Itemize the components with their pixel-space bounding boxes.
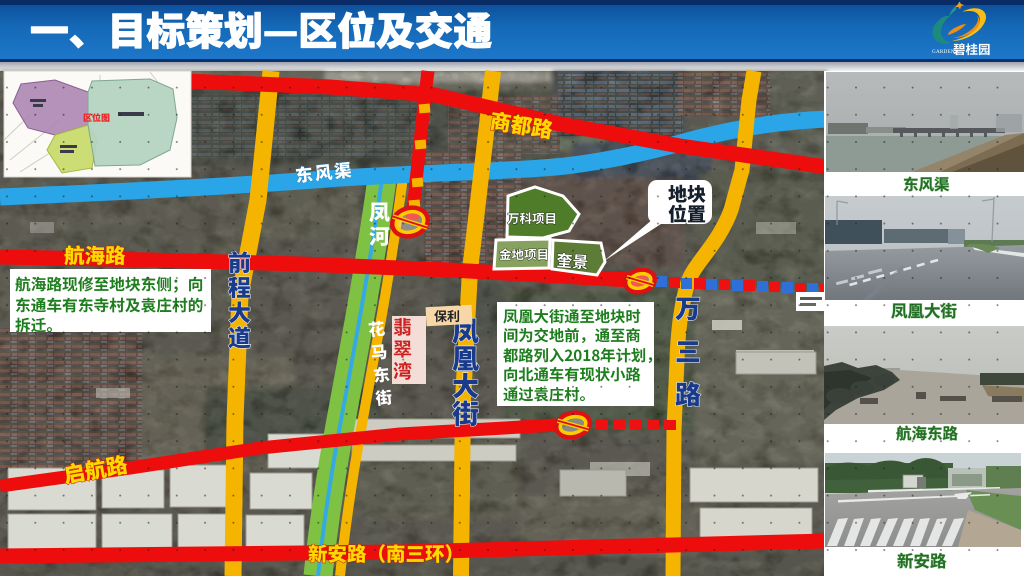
svg-text:GARDEN: GARDEN — [932, 49, 955, 55]
